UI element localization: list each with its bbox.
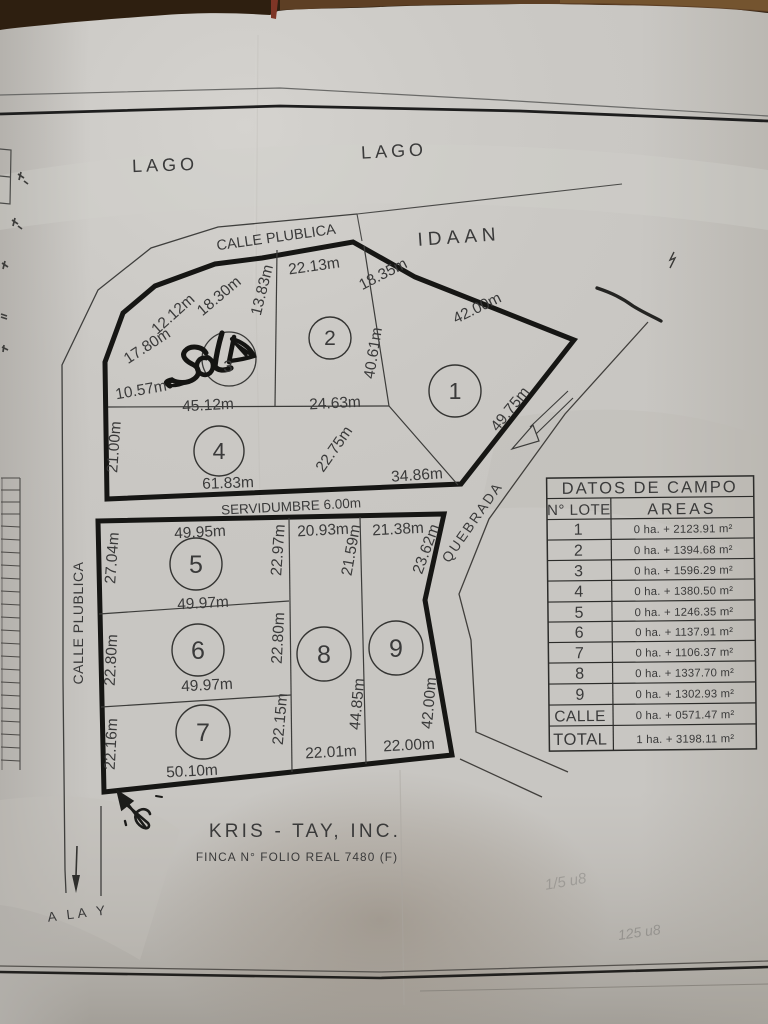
svg-text:0 ha. + 0571.47 m²: 0 ha. + 0571.47 m² (636, 709, 735, 722)
svg-text:LAGO: LAGO (132, 154, 199, 176)
svg-text:0 ha. + 1596.29 m²: 0 ha. + 1596.29 m² (634, 565, 733, 578)
svg-text:CALLE: CALLE (554, 708, 606, 726)
svg-text:21.00m: 21.00m (104, 421, 125, 474)
svg-text:5: 5 (189, 551, 203, 579)
svg-text:49.97m: 49.97m (181, 676, 234, 696)
svg-text:0 ha. + 1137.91 m²: 0 ha. + 1137.91 m² (635, 626, 733, 639)
svg-text:21.38m: 21.38m (372, 520, 425, 540)
svg-text:TOTAL: TOTAL (553, 730, 607, 749)
svg-text:9: 9 (389, 635, 403, 663)
svg-text:9: 9 (575, 687, 584, 704)
svg-text:0 ha. + 2123.91 m²: 0 ha. + 2123.91 m² (634, 523, 733, 536)
svg-text:1: 1 (449, 378, 462, 404)
svg-text:20.93m: 20.93m (297, 521, 350, 541)
svg-text:50.10m: 50.10m (166, 762, 219, 782)
svg-text:FINCA N° FOLIO REAL 7480 (F): FINCA N° FOLIO REAL 7480 (F) (196, 850, 398, 864)
svg-text:6: 6 (575, 625, 584, 642)
svg-text:3: 3 (574, 563, 583, 580)
svg-text:8: 8 (317, 641, 331, 669)
svg-text:3: 3 (223, 357, 232, 376)
svg-text:0 ha. + 1302.93 m²: 0 ha. + 1302.93 m² (635, 688, 734, 701)
svg-text:49.95m: 49.95m (174, 523, 227, 543)
svg-text:22.97m: 22.97m (268, 524, 289, 577)
svg-text:N° LOTE: N° LOTE (547, 501, 611, 519)
svg-text:22.00m: 22.00m (383, 736, 436, 756)
svg-text:AREAS: AREAS (647, 501, 716, 519)
svg-text:24.63m: 24.63m (309, 394, 362, 414)
svg-text:22.01m: 22.01m (305, 743, 358, 763)
svg-text:2: 2 (324, 327, 336, 350)
svg-text:2: 2 (574, 543, 583, 560)
svg-text:0 ha. + 1380.50 m²: 0 ha. + 1380.50 m² (634, 585, 733, 598)
svg-text:22.80m: 22.80m (102, 634, 122, 687)
svg-text:61.83m: 61.83m (202, 474, 254, 493)
svg-text:0 ha. + 1246.35 m²: 0 ha. + 1246.35 m² (635, 606, 734, 619)
svg-text:4: 4 (213, 438, 226, 464)
svg-text:6: 6 (191, 637, 205, 665)
svg-text:1 ha. + 3198.11 m²: 1 ha. + 3198.11 m² (636, 733, 734, 746)
svg-text:8: 8 (575, 666, 584, 683)
svg-text:DATOS DE CAMPO: DATOS DE CAMPO (562, 478, 738, 498)
svg-text:7: 7 (196, 719, 210, 747)
svg-text:49.97m: 49.97m (177, 594, 230, 614)
svg-text:5: 5 (574, 605, 583, 622)
svg-text:22.16m: 22.16m (102, 718, 122, 771)
svg-text:7: 7 (575, 645, 584, 662)
svg-text:4: 4 (574, 584, 583, 601)
svg-text:CALLE PLUBLICA: CALLE PLUBLICA (70, 561, 86, 684)
svg-text:0 ha. + 1394.68 m²: 0 ha. + 1394.68 m² (634, 544, 733, 557)
svg-text:1: 1 (574, 522, 583, 539)
svg-text:27.04m: 27.04m (102, 532, 123, 585)
svg-text:45.12m: 45.12m (182, 396, 235, 416)
svg-text:0 ha. + 1337.70 m²: 0 ha. + 1337.70 m² (635, 667, 734, 680)
svg-text:0 ha. + 1106.37 m²: 0 ha. + 1106.37 m² (635, 647, 733, 660)
svg-text:LAGO: LAGO (361, 139, 428, 162)
svg-text:22.80m: 22.80m (269, 612, 289, 665)
svg-text:34.86m: 34.86m (391, 465, 444, 486)
svg-text:KRIS - TAY, INC.: KRIS - TAY, INC. (209, 821, 401, 842)
